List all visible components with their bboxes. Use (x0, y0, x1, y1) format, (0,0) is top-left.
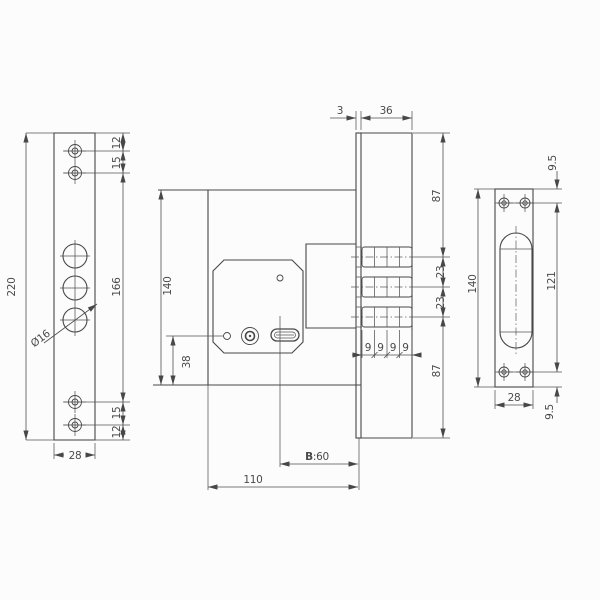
dim-label-edge-to-hole-top: 12 (111, 137, 123, 150)
drawing-canvas: 220 Ø16 12 15 166 15 12 (0, 0, 600, 600)
fixing-hole (224, 333, 231, 340)
dim-label-keyhole-to-bottom: 38 (181, 356, 193, 369)
screw-hole (495, 363, 513, 381)
dim-label-edge-to-hole-bottom: 12 (111, 426, 123, 439)
left-view-hole-dimension-chain: 12 15 166 15 12 (111, 133, 123, 440)
dim-label-bolt-pitch-upper: 23 (435, 266, 447, 279)
dim-label-case-depth: 36 (380, 105, 393, 117)
screw-hole (495, 194, 513, 212)
dim-label-plate-width: 28 (508, 392, 521, 404)
fixing-hole (277, 275, 283, 281)
lock-technical-drawing: 220 Ø16 12 15 166 15 12 (0, 0, 600, 600)
strike-plate-outline (495, 189, 533, 387)
right-view-strike-plate: 140 9.5 121 9.5 28 (467, 155, 562, 420)
dim-label-bolt-pitch-lower: 23 (435, 297, 447, 310)
right-view-hole-dimension-chain: 9.5 121 9.5 (544, 155, 559, 420)
left-view-faceplate-front: 220 Ø16 12 15 166 15 12 (6, 133, 130, 462)
dim-label-faceplate-thickness: 3 (337, 105, 343, 117)
dim-label-top-to-first-bolt: 87 (431, 190, 443, 203)
lock-case (361, 133, 412, 438)
dim-label-bolt-step-2: 9 (377, 342, 383, 354)
dim-label-plate-height: 140 (467, 274, 479, 293)
screw-hole (516, 363, 534, 381)
dim-label-body-height: 140 (162, 276, 174, 295)
dim-label-body-length: 110 (243, 474, 262, 486)
center-view-lock-body: 3 36 140 38 87 23 23 87 (153, 105, 450, 490)
dim-label-backset: B:60 (305, 451, 329, 463)
dim-label-overall-height: 220 (6, 277, 18, 296)
faceplate-side (356, 133, 361, 438)
dim-label-hole-span: 121 (546, 271, 558, 290)
bolt-step-dimensions: 9 9 9 9 (352, 330, 421, 358)
center-view-bolt-dimension-chain: 87 23 23 87 (431, 133, 447, 438)
dim-label-edge-to-hole-bottom: 9.5 (544, 404, 556, 420)
dim-label-screw-hole-span: 166 (111, 277, 123, 297)
cylinder-center (249, 335, 251, 337)
screw-hole (64, 140, 86, 162)
dim-label-bolt-step-3: 9 (390, 342, 396, 354)
dim-label-bolt-step-1: 9 (365, 342, 371, 354)
dim-label-plate-width: 28 (69, 450, 82, 462)
dim-label-screw-spacing-bottom: 15 (111, 407, 123, 420)
bolt-housing (306, 244, 356, 328)
dim-label-screw-spacing-top: 15 (111, 157, 123, 170)
screw-hole (64, 162, 86, 184)
screw-hole (64, 414, 86, 436)
dim-label-bolt-step-4: 9 (402, 342, 408, 354)
screw-hole (64, 391, 86, 413)
screw-hole (516, 194, 534, 212)
dim-label-edge-to-hole-top: 9.5 (547, 155, 559, 171)
bolt-hole-circles (60, 240, 90, 336)
dim-label-bolt-hole-diameter: Ø16 (29, 327, 53, 349)
dim-label-last-bolt-to-bottom: 87 (431, 365, 443, 378)
